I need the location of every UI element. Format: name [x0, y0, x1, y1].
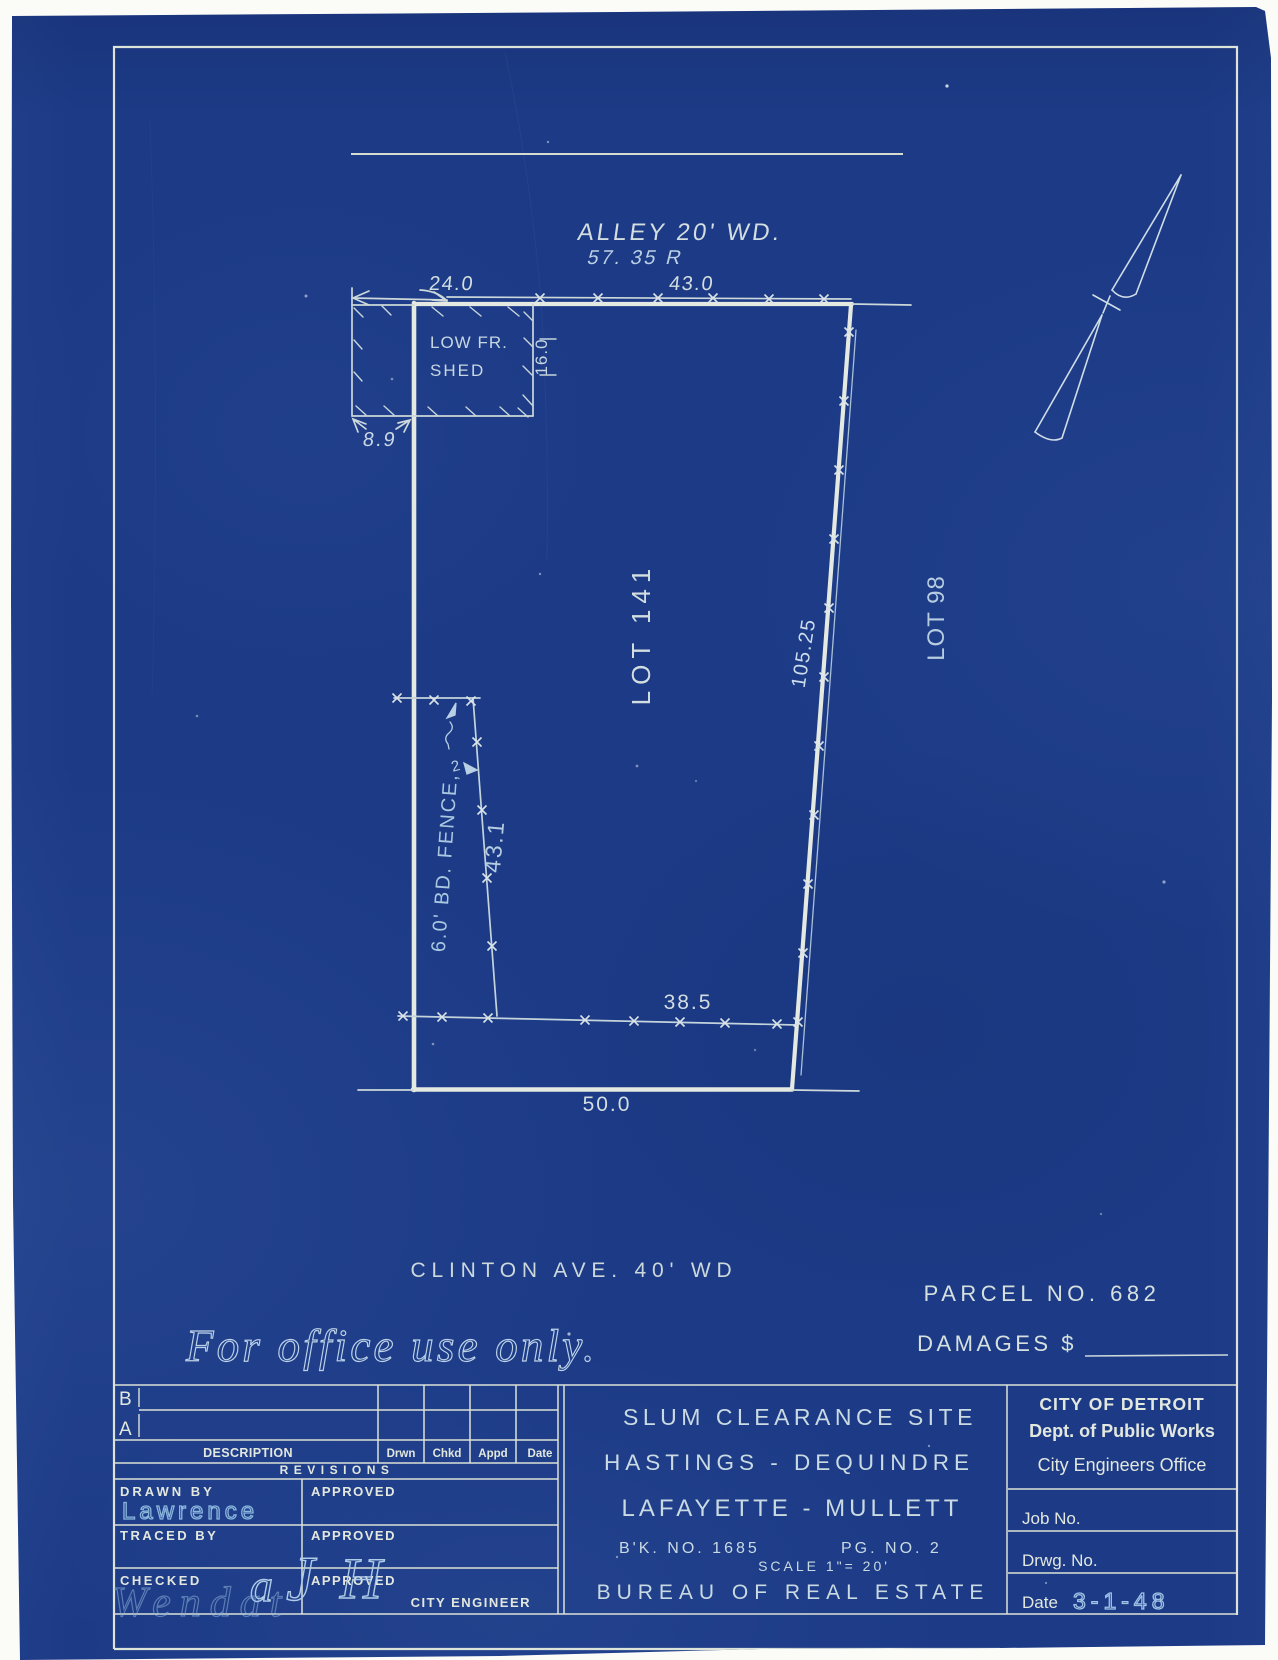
svg-text:SCALE 1"= 20': SCALE 1"= 20' [758, 1558, 890, 1574]
svg-text:LAFAYETTE - MULLETT: LAFAYETTE - MULLETT [622, 1495, 963, 1522]
svg-text:SLUM CLEARANCE SITE: SLUM CLEARANCE SITE [623, 1404, 977, 1430]
svg-text:REVISIONS: REVISIONS [280, 1463, 395, 1477]
svg-text:Job No.: Job No. [1022, 1509, 1081, 1528]
svg-text:DESCRIPTION: DESCRIPTION [203, 1446, 293, 1460]
svg-text:CITY ENGINEER: CITY ENGINEER [411, 1595, 531, 1610]
svg-text:8.9: 8.9 [361, 429, 398, 451]
svg-text:DRAWN BY: DRAWN BY [120, 1484, 215, 1499]
svg-text:TRACED BY: TRACED BY [120, 1528, 218, 1543]
svg-text:Drwg. No.: Drwg. No. [1022, 1551, 1098, 1570]
svg-text:Wendat: Wendat [112, 1580, 290, 1626]
svg-text:Dept. of Public Works: Dept. of Public Works [1029, 1421, 1215, 1441]
svg-text:SHED: SHED [430, 361, 485, 380]
svg-text:105.25: 105.25 [788, 617, 821, 690]
svg-text:24.0: 24.0 [428, 273, 475, 295]
svg-text:HASTINGS - DEQUINDRE: HASTINGS - DEQUINDRE [604, 1450, 974, 1475]
svg-text:Date: Date [528, 1448, 553, 1460]
svg-text:LOT 98: LOT 98 [923, 575, 950, 661]
svg-text:For office use only.: For office use only. [185, 1321, 597, 1371]
svg-text:PARCEL NO. 682: PARCEL NO. 682 [924, 1281, 1161, 1306]
svg-text:B'K. NO. 1685: B'K. NO. 1685 [619, 1540, 760, 1557]
svg-text:PG. NO. 2: PG. NO. 2 [841, 1540, 942, 1557]
svg-text:LOT 141: LOT 141 [626, 563, 656, 706]
svg-text:Drwn: Drwn [387, 1448, 416, 1460]
svg-text:43.1: 43.1 [479, 819, 509, 874]
svg-text:A: A [119, 1419, 132, 1440]
svg-text:APPROVED: APPROVED [311, 1528, 396, 1543]
svg-text:Date: Date [1022, 1593, 1058, 1612]
svg-text:APPROVED: APPROVED [311, 1484, 396, 1499]
svg-text:LOW FR.: LOW FR. [430, 333, 508, 352]
svg-text:43.0: 43.0 [668, 273, 715, 295]
svg-text:57. 35 R: 57. 35 R [585, 247, 686, 269]
svg-text:ALLEY 20' WD.: ALLEY 20' WD. [576, 219, 784, 246]
svg-text:CLINTON AVE. 40' WD: CLINTON AVE. 40' WD [411, 1259, 738, 1282]
svg-text:6.0' BD. FENCE,: 6.0' BD. FENCE, [428, 772, 462, 953]
svg-text:Appd: Appd [478, 1448, 507, 1460]
svg-text:50.0: 50.0 [583, 1093, 632, 1116]
svg-text:16.0: 16.0 [532, 338, 551, 375]
svg-text:CITY OF DETROIT: CITY OF DETROIT [1039, 1394, 1204, 1414]
svg-text:B: B [119, 1389, 132, 1410]
svg-text:38.5: 38.5 [664, 991, 713, 1014]
svg-text:J: J [286, 1543, 317, 1614]
svg-text:City Engineers Office: City Engineers Office [1038, 1455, 1207, 1475]
svg-text:H: H [339, 1546, 385, 1611]
svg-text:3-1-48: 3-1-48 [1073, 1588, 1169, 1614]
svg-text:Lawrence: Lawrence [122, 1498, 258, 1525]
svg-text:DAMAGES $: DAMAGES $ [917, 1331, 1077, 1356]
svg-text:2: 2 [449, 757, 461, 776]
svg-text:Chkd: Chkd [433, 1448, 462, 1460]
svg-text:BUREAU OF REAL ESTATE: BUREAU OF REAL ESTATE [597, 1581, 990, 1604]
